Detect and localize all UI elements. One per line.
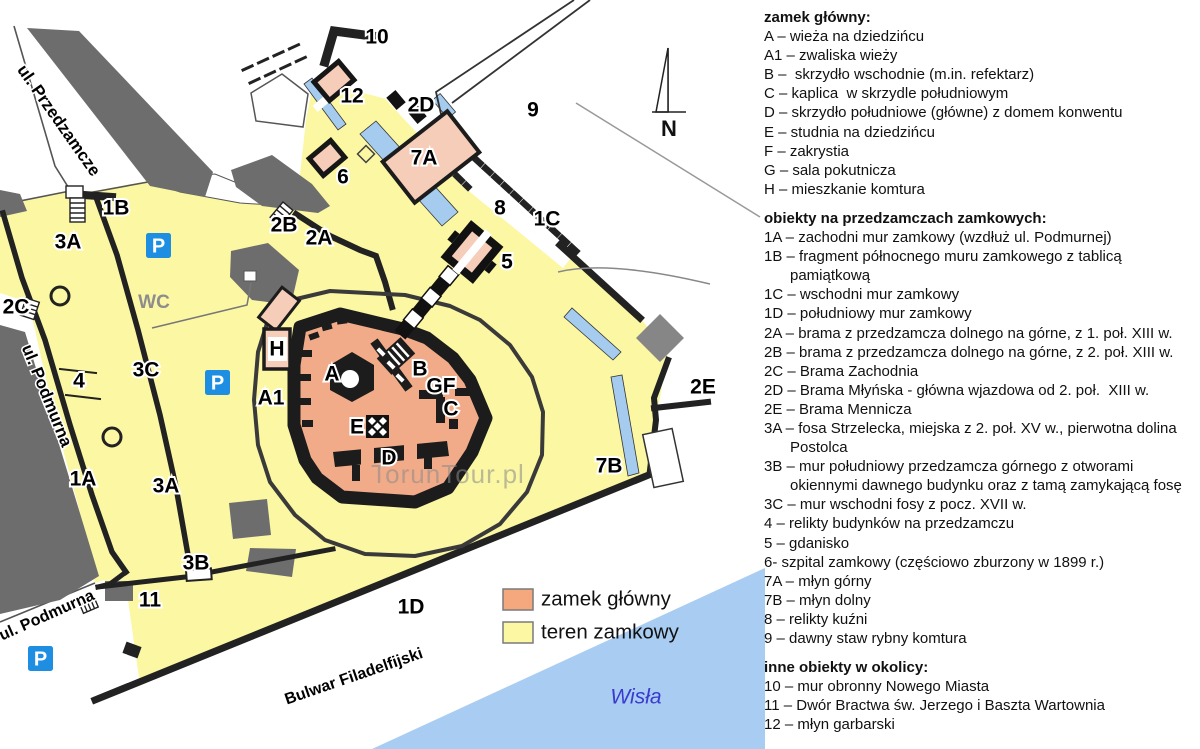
legend-line: 1D – południowy mur zamkowy xyxy=(764,304,1196,323)
legend-line: 1A – zachodni mur zamkowy (wzdłuż ul. Po… xyxy=(764,228,1196,247)
map-label-B: B xyxy=(412,358,427,381)
legend-line: 1C – wschodni mur zamkowy xyxy=(764,285,1196,304)
map-legend: zamek głównyteren zamkowy xyxy=(503,587,680,643)
wc-label: WC xyxy=(138,292,170,313)
map-label-A1: A1 xyxy=(258,387,285,410)
river-label: Wisła xyxy=(610,686,661,709)
legend-line: 7A – młyn górny xyxy=(764,572,1196,591)
castle-map-page: N TorunTour.pl WC Wisła 10122D967A81C2B2… xyxy=(0,0,1200,749)
map-label-1A: 1A xyxy=(70,468,97,491)
legend-line: 10 – mur obronny Nowego Miasta xyxy=(764,677,1196,696)
legend-line: 4 – relikty budynków na przedzamczu xyxy=(764,514,1196,533)
map-label-7A: 7A xyxy=(411,147,438,170)
legend-line: A1 – zwaliska wieży xyxy=(764,46,1196,65)
svg-text:P: P xyxy=(152,235,165,257)
map-label-H: H xyxy=(269,338,284,361)
map-label-4: 4 xyxy=(73,370,85,393)
legend-line: 11 – Dwór Bractwa św. Jerzego i Baszta W… xyxy=(764,696,1196,715)
map-label-1B: 1B xyxy=(103,197,130,220)
legend-swatch xyxy=(503,589,533,610)
legend-section-0: zamek główny:A – wieża na dziedzińcuA1 –… xyxy=(764,8,1196,199)
legend-swatch xyxy=(503,622,533,643)
legend-label: teren zamkowy xyxy=(541,620,680,643)
north-arrow xyxy=(652,48,686,112)
map-label-D: D xyxy=(381,447,396,470)
map-label-1D: 1D xyxy=(398,596,425,619)
legend-line: 5 – gdanisko xyxy=(764,534,1196,553)
legend-line: 2E – Brama Mennicza xyxy=(764,400,1196,419)
parking-icon: P xyxy=(205,370,230,395)
legend-line: 2C – Brama Zachodnia xyxy=(764,362,1196,381)
svg-text:P: P xyxy=(34,648,47,670)
legend-section-heading: obiekty na przedzamczach zamkowych: xyxy=(764,209,1196,228)
legend-line: 3B – mur południowy przedzamcza górnego … xyxy=(764,457,1196,476)
map-label-10: 10 xyxy=(365,26,388,49)
legend-section-1: obiekty na przedzamczach zamkowych:1A – … xyxy=(764,209,1196,648)
legend-section-2: inne obiekty w okolicy:10 – mur obronny … xyxy=(764,658,1196,734)
legend-line: 3A – fosa Strzelecka, miejska z 2. poł. … xyxy=(764,419,1196,438)
map-label-3A: 3A xyxy=(153,475,180,498)
svg-text:P: P xyxy=(211,372,224,394)
legend-line: E – studnia na dziedzińcu xyxy=(764,123,1196,142)
map-label-3A: 3A xyxy=(55,231,82,254)
legend-line: H – mieszkanie komtura xyxy=(764,180,1196,199)
map-label-2C: 2C xyxy=(3,296,30,319)
map-canvas: N TorunTour.pl WC Wisła 10122D967A81C2B2… xyxy=(0,0,765,749)
legend-line: D – skrzydło południowe (główne) z domem… xyxy=(764,103,1196,122)
legend-line: 2B – brama z przedzamcza dolnego na górn… xyxy=(764,343,1196,362)
parking-icon: P xyxy=(28,646,53,671)
north-label: N xyxy=(661,116,677,141)
map-label-8: 8 xyxy=(494,197,506,220)
map-label-7B: 7B xyxy=(596,455,623,478)
legend-line: B – skrzydło wschodnie (m.in. refektarz) xyxy=(764,65,1196,84)
legend-line: 2D – Brama Młyńska - główna wjazdowa od … xyxy=(764,381,1196,400)
legend-line: G – sala pokutnicza xyxy=(764,161,1196,180)
map-label-2B: 2B xyxy=(271,214,298,237)
legend-line: 1B – fragment północnego muru zamkowego … xyxy=(764,247,1196,266)
legend-line: C – kaplica w skrzydle południowym xyxy=(764,84,1196,103)
legend-line: F – zakrystia xyxy=(764,142,1196,161)
legend-label: zamek główny xyxy=(541,587,672,610)
map-legend-entry-1: teren zamkowy xyxy=(503,620,680,643)
legend-line: 2A – brama z przedzamcza dolnego na górn… xyxy=(764,324,1196,343)
street-label: Bulwar Filadelfijski xyxy=(283,645,426,708)
legend-line: pamiątkową xyxy=(764,266,1196,285)
legend-line: 7B – młyn dolny xyxy=(764,591,1196,610)
map-label-6: 6 xyxy=(337,166,349,189)
legend-line: A – wieża na dziedzińcu xyxy=(764,27,1196,46)
map-label-2D: 2D xyxy=(408,94,435,117)
map-label-12: 12 xyxy=(340,85,363,108)
legend-line: 3C – mur wschodni fosy z pocz. XVII w. xyxy=(764,495,1196,514)
map-label-3C: 3C xyxy=(133,359,160,382)
map-label-A: A xyxy=(324,363,339,386)
map-legend-entry-0: zamek główny xyxy=(503,587,672,610)
legend-line: 6- szpital zamkowy (częściowo zburzony w… xyxy=(764,553,1196,572)
map-label-GF: GF xyxy=(426,375,455,398)
legend-line: Postolca xyxy=(764,438,1196,457)
legend-line: okiennymi dawnego budynku oraz z tamą za… xyxy=(764,476,1196,495)
tower-a-core xyxy=(341,370,359,388)
well-e xyxy=(366,415,389,438)
legend-line: 9 – dawny staw rybny komtura xyxy=(764,629,1196,648)
parking-icon: P xyxy=(146,233,171,258)
legend-line: 12 – młyn garbarski xyxy=(764,715,1196,734)
map-label-C: C xyxy=(443,398,458,421)
legend-section-heading: zamek główny: xyxy=(764,8,1196,27)
map-label-3B: 3B xyxy=(183,552,210,575)
map-label-11: 11 xyxy=(139,589,162,612)
map-label-5: 5 xyxy=(501,251,513,274)
legend-section-heading: inne obiekty w okolicy: xyxy=(764,658,1196,677)
map-label-E: E xyxy=(350,416,364,439)
legend-panel: zamek główny:A – wieża na dziedzińcuA1 –… xyxy=(764,8,1196,734)
map-label-9: 9 xyxy=(527,99,539,122)
map-label-1C: 1C xyxy=(534,208,561,231)
map-label-2E: 2E xyxy=(690,376,716,399)
map-label-2A: 2A xyxy=(306,227,333,250)
legend-line: 8 – relikty kuźni xyxy=(764,610,1196,629)
